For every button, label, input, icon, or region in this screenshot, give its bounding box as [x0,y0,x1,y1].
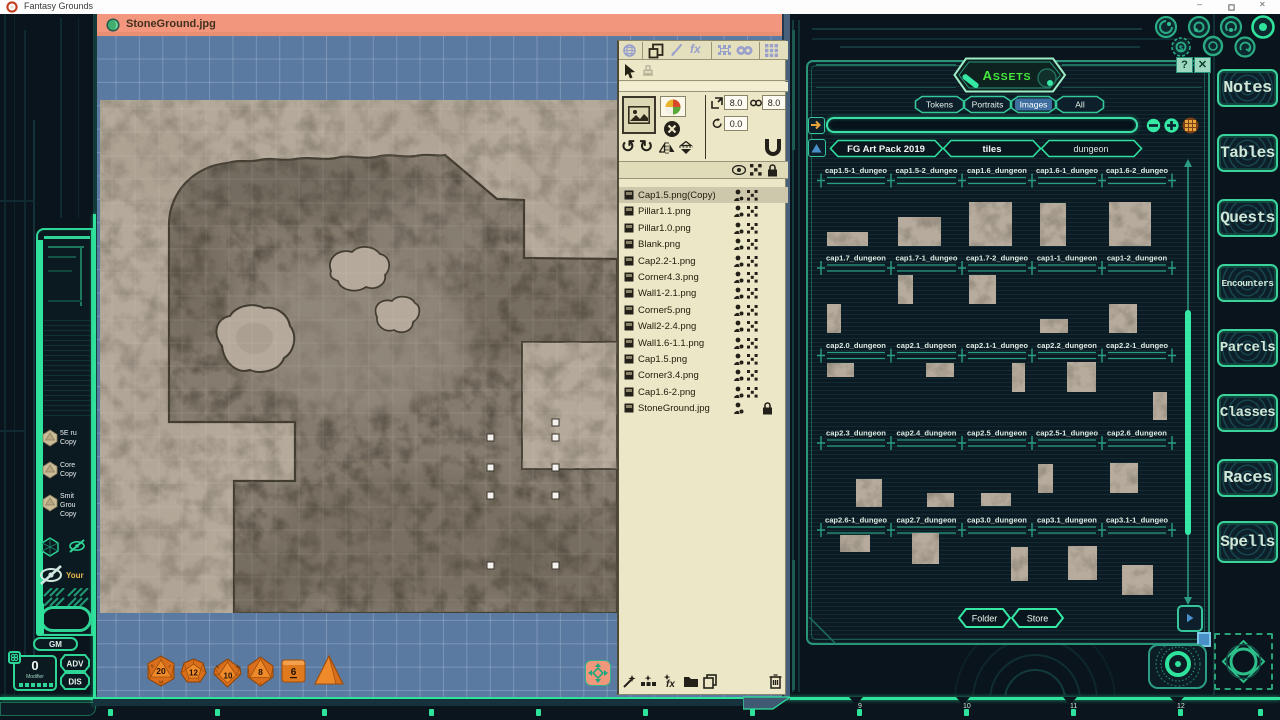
svg-text:cap1.7-1_dungeo: cap1.7-1_dungeo [895,254,957,263]
svg-text:cap1.6-2_dungeo: cap1.6-2_dungeo [1106,166,1168,175]
svg-text:cap2.5-1_dungeo: cap2.5-1_dungeo [1036,429,1098,438]
svg-text:Store: Store [1027,614,1049,624]
svg-text:8: 8 [258,667,263,677]
svg-text:cap1.6_dungeon: cap1.6_dungeon [967,166,1027,175]
svg-text:cap1.7-2_dungeo: cap1.7-2_dungeo [966,254,1028,263]
svg-text:cap2.1-1_dungeo: cap2.1-1_dungeo [966,341,1028,350]
svg-text:cap3.1-1_dungeo: cap3.1-1_dungeo [1106,516,1168,525]
svg-text:cap2.3_dungeon: cap2.3_dungeon [826,429,886,438]
svg-text:cap2.4_dungeon: cap2.4_dungeon [897,429,957,438]
svg-text:cap2.2-1_dungeo: cap2.2-1_dungeo [1106,341,1168,350]
svg-text:cap2.6-1_dungeo: cap2.6-1_dungeo [825,516,887,525]
svg-text:cap1-1_dungeon: cap1-1_dungeon [1037,254,1098,263]
svg-text:14: 14 [159,679,164,684]
svg-text:cap1.7_dungeon: cap1.7_dungeon [826,254,886,263]
svg-text:cap1.5-2_dungeo: cap1.5-2_dungeo [895,166,957,175]
svg-text:cap2.0_dungeon: cap2.0_dungeon [826,341,886,350]
svg-text:20: 20 [156,666,166,676]
svg-text:12: 12 [189,669,198,678]
svg-text:10: 10 [224,672,233,681]
svg-text:cap1.6-1_dungeo: cap1.6-1_dungeo [1036,166,1098,175]
svg-text:cap2.6_dungeon: cap2.6_dungeon [1107,429,1167,438]
svg-text:cap1.5-1_dungeo: cap1.5-1_dungeo [825,166,887,175]
svg-text:$: $ [1179,46,1183,53]
svg-text:fx: fx [666,679,675,689]
svg-text:cap2.7_dungeon: cap2.7_dungeon [897,516,957,525]
svg-text:9: 9 [858,703,862,710]
svg-text:DIS: DIS [68,678,82,687]
svg-text:cap1-2_dungeon: cap1-2_dungeon [1107,254,1168,263]
svg-text:6: 6 [291,667,297,678]
svg-text:11: 11 [1070,703,1077,710]
svg-text:cap2.1_dungeon: cap2.1_dungeon [897,341,957,350]
svg-text:12: 12 [1177,703,1185,710]
svg-text:10: 10 [963,703,971,710]
svg-text:cap3.1_dungeon: cap3.1_dungeon [1037,516,1097,525]
svg-text:cap2.2_dungeon: cap2.2_dungeon [1037,341,1097,350]
svg-text:cap2.5_dungeon: cap2.5_dungeon [967,429,1027,438]
svg-text:Folder: Folder [972,614,998,624]
svg-text:cap3.0_dungeon: cap3.0_dungeon [967,516,1027,525]
svg-text:ADV: ADV [67,660,85,669]
